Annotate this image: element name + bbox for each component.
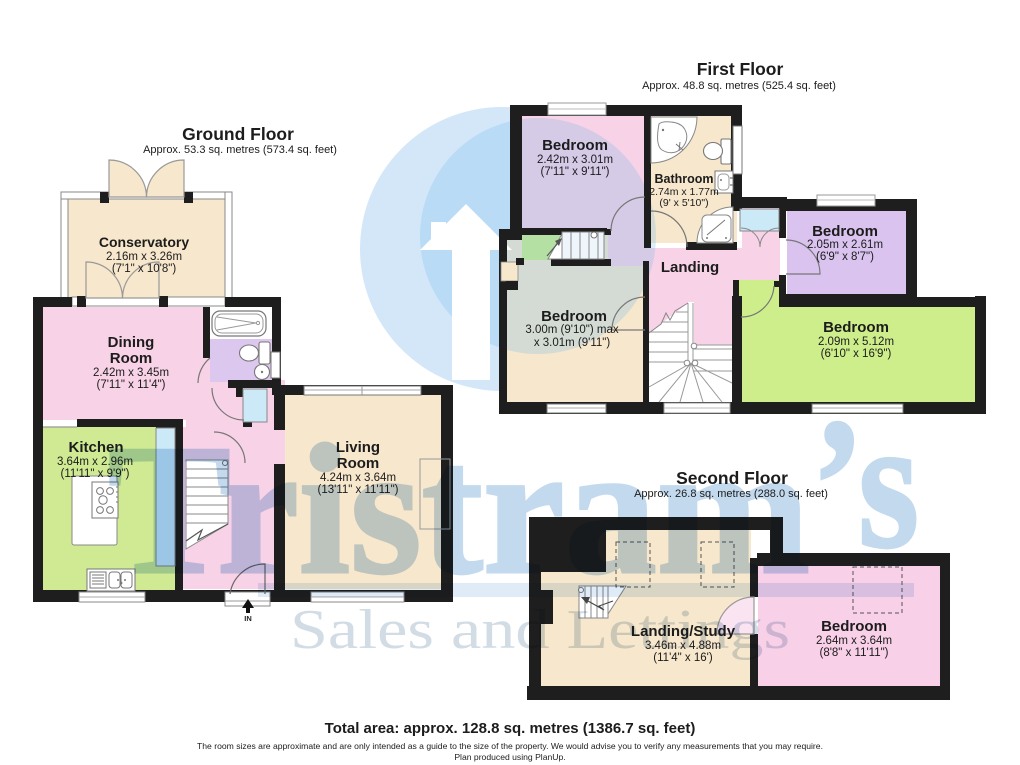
- svg-text:(8'8" x 11'11"): (8'8" x 11'11"): [819, 647, 888, 659]
- svg-text:Approx. 53.3 sq. metres (573.4: Approx. 53.3 sq. metres (573.4 sq. feet): [143, 144, 337, 156]
- svg-text:(6'9" x 8'7"): (6'9" x 8'7"): [816, 251, 874, 263]
- svg-text:The room sizes are approximate: The room sizes are approximate and are o…: [197, 741, 823, 751]
- svg-text:Bedroom: Bedroom: [541, 308, 607, 325]
- svg-text:First Floor: First Floor: [697, 59, 784, 79]
- svg-text:(9' x 5'10"): (9' x 5'10"): [659, 197, 708, 209]
- svg-text:Room: Room: [110, 350, 153, 367]
- svg-text:Bathroom: Bathroom: [654, 172, 713, 186]
- svg-text:2.42m x 3.01m: 2.42m x 3.01m: [537, 154, 613, 166]
- svg-text:2.64m x 3.64m: 2.64m x 3.64m: [816, 635, 892, 647]
- svg-text:Tristram: Tristram: [108, 407, 810, 613]
- svg-text:2.09m x 5.12m: 2.09m x 5.12m: [818, 336, 894, 348]
- svg-text:2.16m x 3.26m: 2.16m x 3.26m: [106, 251, 182, 263]
- svg-text:x 3.01m (9'11"): x 3.01m (9'11"): [534, 337, 611, 349]
- svg-text:Bedroom: Bedroom: [821, 618, 887, 635]
- svg-text:(7'11" x 11'4"): (7'11" x 11'4"): [96, 379, 165, 391]
- svg-text:3.00m (9'10") max: 3.00m (9'10") max: [525, 324, 618, 336]
- svg-text:Conservatory: Conservatory: [99, 234, 189, 250]
- svg-text:Landing: Landing: [661, 259, 719, 276]
- svg-text:Ground Floor: Ground Floor: [182, 124, 294, 144]
- svg-text:Approx. 48.8 sq. metres (525.4: Approx. 48.8 sq. metres (525.4 sq. feet): [642, 80, 836, 92]
- svg-text:(7'1" x 10'8"): (7'1" x 10'8"): [112, 263, 177, 275]
- svg-text:IN: IN: [244, 614, 252, 623]
- svg-text:Approx. 26.8 sq. metres (288.0: Approx. 26.8 sq. metres (288.0 sq. feet): [634, 488, 828, 500]
- svg-text:Second Floor: Second Floor: [676, 468, 788, 488]
- svg-text:’s: ’s: [812, 381, 919, 587]
- svg-text:Plan produced using PlanUp.: Plan produced using PlanUp.: [454, 752, 565, 762]
- svg-text:Bedroom: Bedroom: [542, 137, 608, 154]
- svg-text:Total area: approx. 128.8 sq.: Total area: approx. 128.8 sq. metres (13…: [325, 720, 696, 737]
- svg-text:Bedroom: Bedroom: [812, 223, 878, 240]
- svg-text:(7'11" x 9'11"): (7'11" x 9'11"): [540, 166, 609, 178]
- svg-text:Sales and Lettings: Sales and Lettings: [290, 599, 790, 661]
- svg-text:Dining: Dining: [108, 334, 155, 351]
- svg-text:2.05m x 2.61m: 2.05m x 2.61m: [807, 239, 883, 251]
- svg-text:(6'10" x 16'9"): (6'10" x 16'9"): [821, 348, 892, 360]
- svg-text:2.42m x 3.45m: 2.42m x 3.45m: [93, 367, 169, 379]
- svg-text:Bedroom: Bedroom: [823, 319, 889, 336]
